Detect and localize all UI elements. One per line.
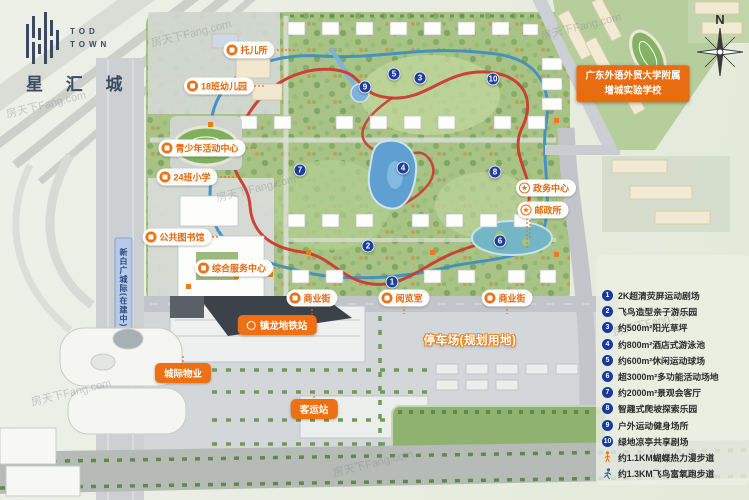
legend-number-badge: 6 bbox=[602, 371, 613, 382]
amenity-marker-10: 10 bbox=[487, 73, 500, 86]
building-icon bbox=[161, 143, 172, 154]
legend-item: 5约600m²休闲运动球场 bbox=[602, 354, 748, 367]
legend-item: 2飞鸟造型亲子游乐园 bbox=[602, 305, 748, 318]
amenity-marker-6: 6 bbox=[494, 235, 507, 248]
school-label-line1: 广东外语外贸大学附属 bbox=[585, 69, 680, 84]
shop-icon bbox=[484, 293, 495, 304]
amenity-marker-2: 2 bbox=[362, 240, 375, 253]
legend-number-badge: 4 bbox=[602, 339, 613, 350]
amenity-marker-8: 8 bbox=[489, 166, 502, 179]
legend-label: 绿地凉亭共享剧场 bbox=[618, 435, 688, 448]
running-person-icon bbox=[602, 468, 613, 480]
legend-number-badge: 9 bbox=[602, 420, 613, 431]
logo-letters: TOD TOWN bbox=[70, 12, 110, 52]
legend-label: 2K超清荧屏运动剧场 bbox=[618, 289, 700, 302]
legend-label: 超3000m²多功能活动场地 bbox=[618, 370, 719, 383]
label-text: 商业街 bbox=[303, 292, 330, 305]
school-label-line2: 增城实验学校 bbox=[585, 84, 680, 99]
label-primary-school: 24班小学 bbox=[156, 169, 217, 186]
logo-town: TOWN bbox=[70, 39, 110, 52]
label-youth-center: 青少年活动中心 bbox=[158, 140, 245, 157]
compass: N bbox=[697, 12, 743, 82]
label-text: 托儿所 bbox=[240, 44, 267, 57]
tod-town-logo: TOD TOWN 星 汇 城 bbox=[26, 12, 131, 95]
label-text: 客运站 bbox=[300, 402, 329, 416]
legend-item: 3约500m²阳光草坪 bbox=[602, 321, 748, 334]
building-icon bbox=[198, 263, 209, 274]
legend-number-badge: 3 bbox=[602, 322, 613, 333]
legend-trail-walk: 约1.1KM蝴蝶热力漫步道 bbox=[602, 451, 748, 464]
compass-rose-icon bbox=[697, 27, 743, 77]
amenity-marker-3: 3 bbox=[414, 72, 427, 85]
label-reading-room: 阅览室 bbox=[378, 290, 429, 307]
label-kindergarten: 18班幼儿园 bbox=[184, 78, 254, 95]
legend-item: 7约2000m²景观会客厅 bbox=[602, 386, 748, 399]
label-service-center: 综合服务中心 bbox=[195, 260, 273, 277]
legend-label: 约1.3KM飞鸟富氧跑步道 bbox=[618, 467, 714, 480]
logo-tod: TOD bbox=[70, 26, 110, 39]
legend-trail-run: 约1.3KM飞鸟富氧跑步道 bbox=[602, 467, 748, 480]
label-coach-station: 客运站 bbox=[291, 399, 338, 419]
building-icon bbox=[226, 45, 237, 56]
legend-label: 飞鸟造型亲子游乐园 bbox=[618, 305, 697, 318]
parking-lot-label: 停车场(规划用地) bbox=[424, 332, 517, 348]
label-commercial-street-east: 商业街 bbox=[481, 290, 532, 307]
label-text: 阅览室 bbox=[395, 292, 422, 305]
legend-label: 约1.1KM蝴蝶热力漫步道 bbox=[618, 451, 714, 464]
label-text: 综合服务中心 bbox=[212, 262, 266, 275]
legend-label: 户外运动健身场所 bbox=[618, 419, 688, 432]
label-text: 18班幼儿园 bbox=[201, 80, 247, 93]
legend-number-badge: 8 bbox=[602, 403, 613, 414]
walking-person-icon bbox=[602, 451, 613, 463]
legend-item: 8智趣式爬坡探索乐园 bbox=[602, 402, 748, 415]
legend-item: 6超3000m²多功能活动场地 bbox=[602, 370, 748, 383]
legend-label: 约500m²阳光草坪 bbox=[618, 321, 687, 334]
label-public-library: 公共图书馆 bbox=[142, 229, 211, 246]
label-text: 镇龙地铁站 bbox=[260, 318, 308, 332]
compass-north-label: N bbox=[697, 12, 743, 27]
label-text: 邮政所 bbox=[534, 204, 561, 217]
intercity-rail-label: 新白广城际(在建中) bbox=[118, 248, 129, 327]
legend-number-badge: 1 bbox=[602, 290, 613, 301]
label-text: 公共图书馆 bbox=[159, 231, 204, 244]
ramp-road-2 bbox=[16, 165, 70, 330]
ramp-road bbox=[50, 155, 92, 305]
label-metro-station: 镇龙地铁站 bbox=[238, 315, 317, 335]
amenity-marker-4: 4 bbox=[397, 162, 410, 175]
masterplan-canvas: 房天下Fang.com 房天下Fang.com 房天下Fang.com 房天下F… bbox=[0, 0, 749, 500]
label-nursery: 托儿所 bbox=[223, 42, 274, 59]
amenity-marker-9: 9 bbox=[359, 81, 372, 94]
legend-label: 约600m²休闲运动球场 bbox=[618, 354, 705, 367]
label-intercity-property: 城际物业 bbox=[155, 363, 211, 383]
building-icon bbox=[187, 81, 198, 92]
label-text: 政务中心 bbox=[533, 182, 569, 195]
school-label: 广东外语外贸大学附属 增城实验学校 bbox=[576, 65, 689, 102]
label-post-office: 邮政所 bbox=[517, 202, 568, 219]
shop-icon bbox=[289, 293, 300, 304]
metro-icon bbox=[247, 321, 256, 330]
book-icon bbox=[381, 293, 392, 304]
legend-label: 智趣式爬坡探索乐园 bbox=[618, 402, 697, 415]
legend-label: 约800m²酒店式游泳池 bbox=[618, 338, 705, 351]
label-text: 24班小学 bbox=[173, 171, 210, 184]
amenity-legend: 12K超清荧屏运动剧场 2飞鸟造型亲子游乐园 3约500m²阳光草坪 4约800… bbox=[602, 289, 748, 483]
amenity-marker-1: 1 bbox=[386, 276, 399, 289]
label-text: 商业街 bbox=[498, 292, 525, 305]
legend-number-badge: 7 bbox=[602, 387, 613, 398]
legend-label: 约2000m²景观会客厅 bbox=[618, 386, 701, 399]
label-text: 城际物业 bbox=[164, 366, 202, 380]
logo-bars-icon bbox=[26, 12, 62, 66]
legend-item: 4约800m²酒店式游泳池 bbox=[602, 338, 748, 351]
star-icon bbox=[519, 183, 530, 194]
amenity-marker-7: 7 bbox=[294, 164, 307, 177]
label-government-center: 政务中心 bbox=[516, 180, 576, 197]
school-icon bbox=[159, 172, 170, 183]
legend-number-badge: 10 bbox=[602, 436, 613, 447]
legend-item: 9户外运动健身场所 bbox=[602, 419, 748, 432]
legend-item: 10绿地凉亭共享剧场 bbox=[602, 435, 748, 448]
label-commercial-street-west: 商业街 bbox=[286, 290, 337, 307]
star-icon bbox=[520, 205, 531, 216]
legend-item: 12K超清荧屏运动剧场 bbox=[602, 289, 748, 302]
legend-number-badge: 2 bbox=[602, 306, 613, 317]
book-icon bbox=[145, 232, 156, 243]
amenity-marker-5: 5 bbox=[388, 68, 401, 81]
legend-number-badge: 5 bbox=[602, 355, 613, 366]
label-text: 青少年活动中心 bbox=[175, 142, 238, 155]
project-name: 星 汇 城 bbox=[26, 70, 131, 95]
